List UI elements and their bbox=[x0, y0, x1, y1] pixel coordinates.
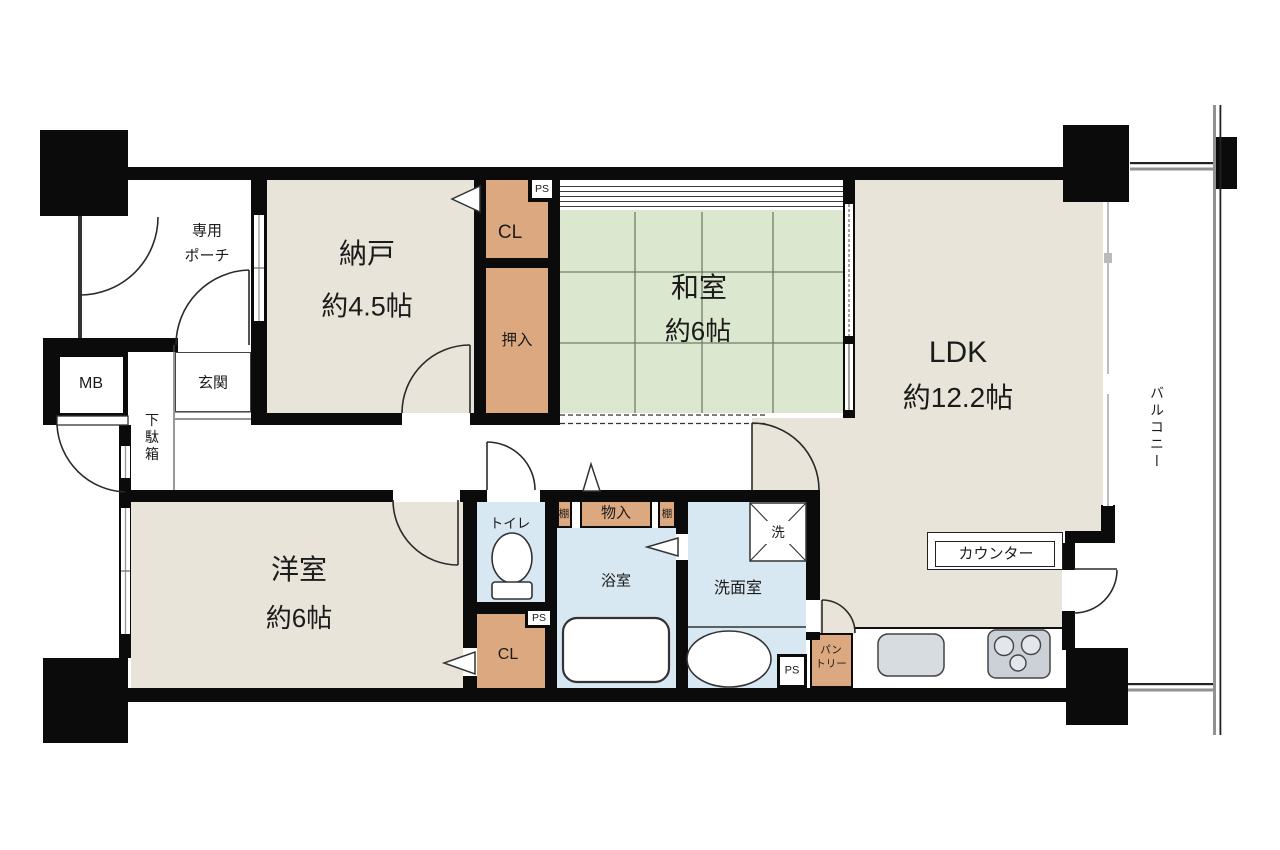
genkan-label: 玄関 bbox=[198, 374, 228, 391]
tana2-label: 棚 bbox=[662, 508, 673, 520]
door-opening-cl-bottom bbox=[463, 648, 477, 676]
washitsu-size-label: 約6帖 bbox=[665, 317, 731, 347]
ps-top-label: PS bbox=[535, 183, 549, 195]
toilet-label: トイレ bbox=[490, 516, 531, 532]
pantry-label-line1: パン bbox=[820, 644, 842, 656]
wall-bottom bbox=[128, 688, 1068, 702]
wall-bath-senmen bbox=[676, 490, 688, 688]
washitsu-sliding-band bbox=[560, 413, 767, 426]
ldk-name-label: LDK bbox=[929, 336, 987, 371]
yoshitsu-size-label: 約6帖 bbox=[266, 604, 332, 634]
room-bath-floor bbox=[557, 528, 676, 688]
bath-label: 浴室 bbox=[601, 572, 631, 589]
monoire-door-marker bbox=[583, 464, 600, 491]
washitsu-top-band bbox=[560, 182, 843, 210]
senmen-label: 洗面室 bbox=[714, 580, 762, 598]
washer-label: 洗 bbox=[771, 525, 785, 541]
wall-toilet-bath bbox=[545, 490, 557, 688]
wall-kitchen-east3 bbox=[1062, 543, 1075, 570]
nando-size-label: 約4.5帖 bbox=[321, 291, 413, 322]
wall-top bbox=[128, 167, 1065, 180]
wall-kitchen-east4 bbox=[1062, 611, 1075, 650]
window-ldk-lower bbox=[1103, 394, 1113, 506]
wall-cl-right bbox=[548, 180, 560, 425]
wall-cl-left bbox=[474, 180, 486, 425]
wall-left-lower bbox=[119, 425, 131, 658]
room-ldk-entry-strip bbox=[752, 418, 855, 490]
tana1-label: 棚 bbox=[559, 508, 570, 520]
wall-column-bottomright bbox=[1066, 648, 1128, 725]
wall-column-balcony bbox=[1213, 137, 1237, 189]
floor-plan: 専用 ポーチ 玄関 MB 下駄箱 納戸 約4.5帖 CL PS 押入 和室 約6… bbox=[0, 0, 1280, 850]
front-door bbox=[176, 270, 249, 345]
washitsu-name-label: 和室 bbox=[671, 272, 727, 304]
porch-label-line2: ポーチ bbox=[184, 247, 229, 264]
door-opening-yoshitsu bbox=[393, 490, 460, 502]
wall-washitsu-ldk bbox=[843, 180, 855, 418]
nando-name-label: 納戸 bbox=[339, 238, 395, 270]
door-opening-bath bbox=[676, 534, 688, 560]
toilet-door bbox=[487, 442, 535, 490]
room-ldk-side-strip bbox=[820, 490, 855, 635]
wall-cl-oshiire-sep bbox=[486, 258, 548, 268]
kitchen-counter-band bbox=[855, 627, 1062, 688]
wall-porch-right bbox=[251, 180, 267, 413]
porch-outer-door-arc bbox=[80, 217, 158, 295]
oshiire-label: 押入 bbox=[501, 332, 532, 350]
monoire-label: 物入 bbox=[601, 504, 631, 521]
room-washitsu-floor bbox=[560, 210, 843, 413]
wall-kitchen-east2 bbox=[1065, 531, 1115, 543]
ps-mid-label: PS bbox=[532, 612, 546, 624]
wall-column-bottomleft bbox=[43, 658, 128, 743]
wall-genkan-top bbox=[43, 338, 178, 352]
wall-senmen-right-b bbox=[806, 632, 820, 640]
mb-label: MB bbox=[79, 375, 103, 393]
cl-bottom-label: CL bbox=[498, 646, 518, 664]
wall-senmen-right-a bbox=[806, 490, 820, 600]
window-ldk-upper bbox=[1103, 202, 1113, 374]
mb-door bbox=[57, 416, 128, 492]
room-yoshitsu-floor bbox=[131, 502, 463, 688]
porch-partition bbox=[78, 216, 82, 338]
door-opening-toilet bbox=[487, 490, 540, 502]
yoshitsu-name-label: 洋室 bbox=[271, 554, 327, 586]
door-opening-nando bbox=[402, 413, 470, 425]
ps-bottom-label: PS bbox=[785, 665, 800, 678]
balcony-railing bbox=[1128, 105, 1221, 735]
ldk-size-label: 約12.2帖 bbox=[903, 382, 1014, 414]
balcony-door bbox=[1074, 569, 1117, 613]
wall-column-topleft bbox=[40, 130, 128, 216]
porch-label-line1: 専用 bbox=[192, 222, 222, 239]
wall-column-topright bbox=[1063, 125, 1129, 202]
cl-top-label: CL bbox=[498, 222, 522, 244]
pantry-label-line2: トリー bbox=[815, 658, 847, 670]
counter-label: カウンター bbox=[958, 545, 1033, 562]
getabako-label: 下駄箱 bbox=[144, 413, 160, 464]
balcony-label: バルコニー bbox=[1149, 386, 1165, 471]
